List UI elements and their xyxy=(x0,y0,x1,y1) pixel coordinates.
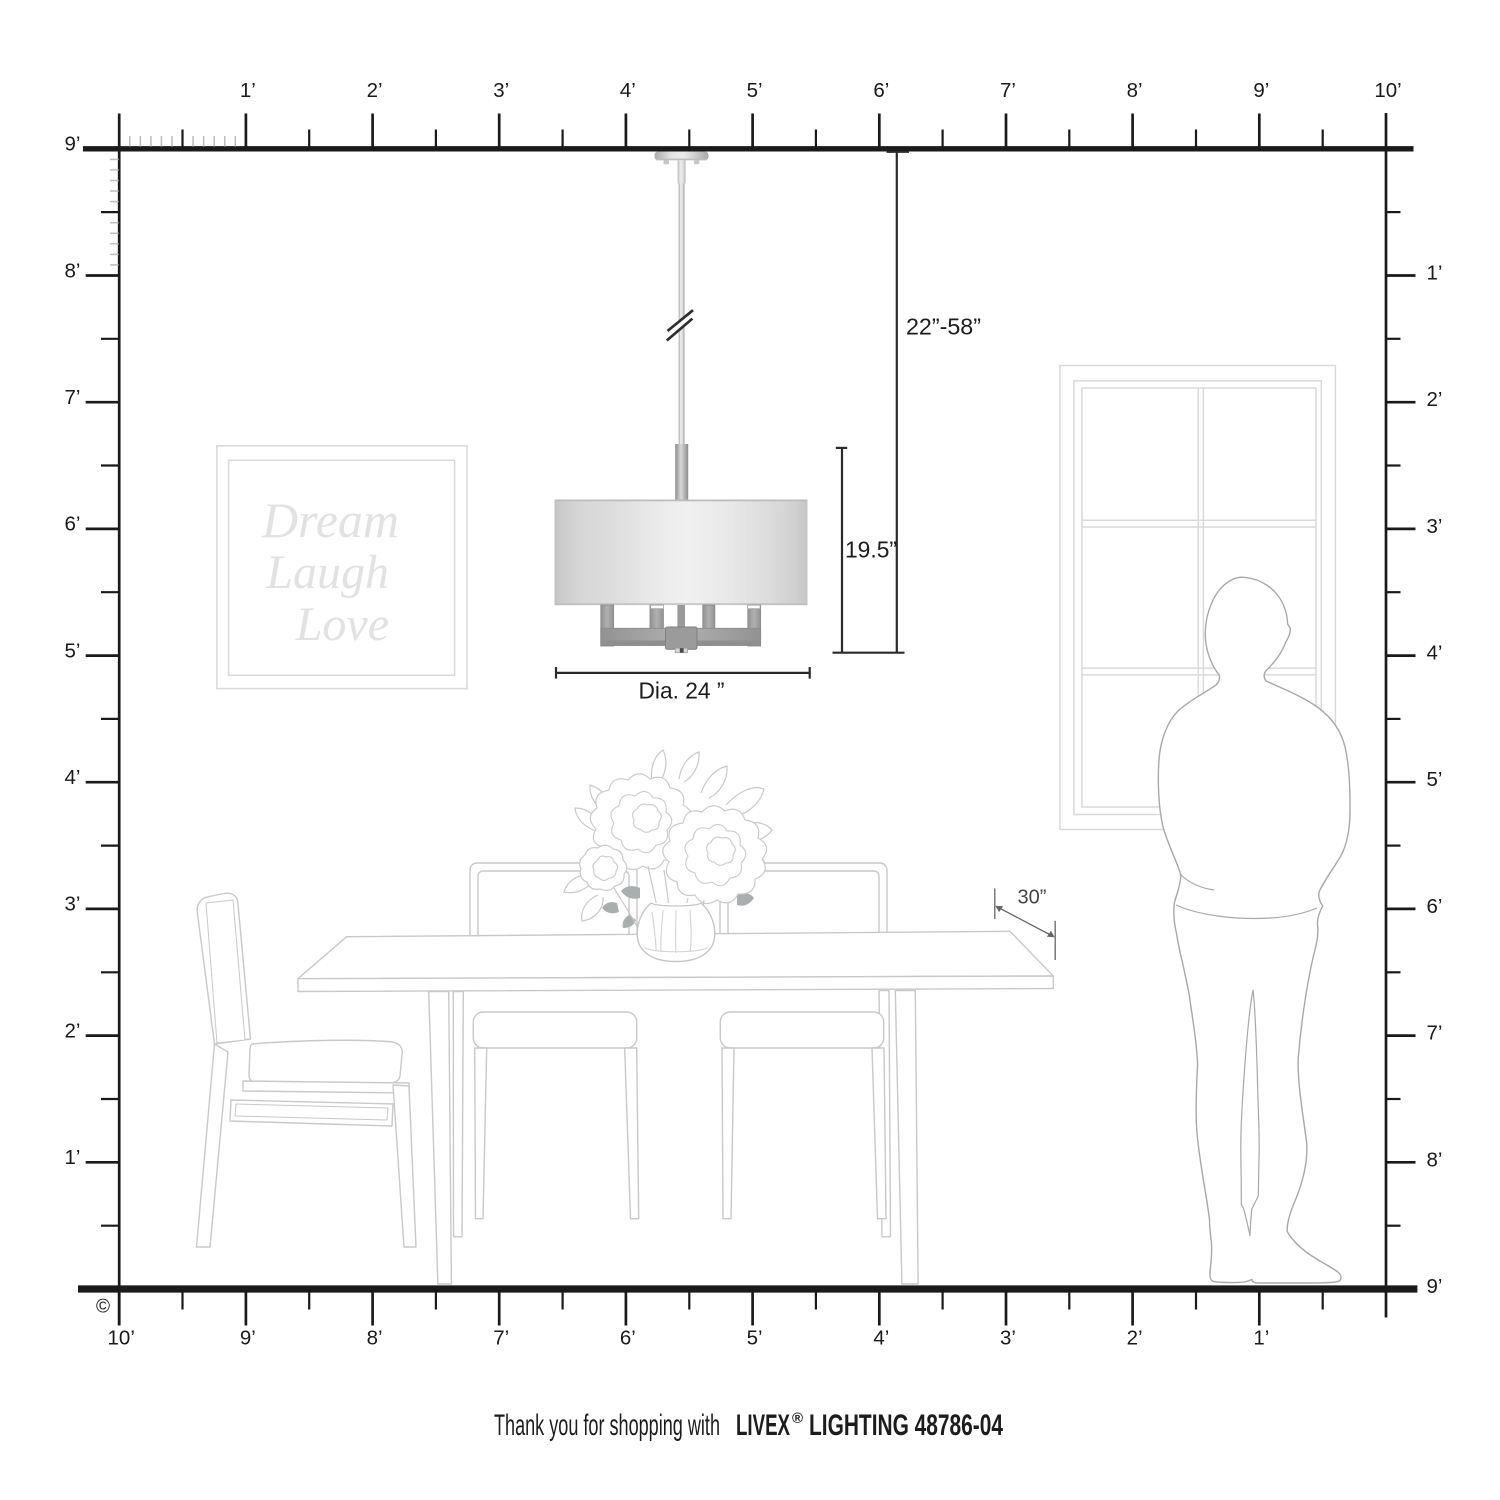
svg-text:9’: 9’ xyxy=(240,1327,256,1350)
svg-text:9’: 9’ xyxy=(1427,1275,1443,1298)
svg-text:3’: 3’ xyxy=(493,79,509,102)
svg-text:1’: 1’ xyxy=(240,79,256,102)
svg-text:6’: 6’ xyxy=(65,513,81,536)
svg-text:LIGHTING 48786-04: LIGHTING 48786-04 xyxy=(809,1409,1003,1442)
svg-text:4’: 4’ xyxy=(1427,642,1443,665)
svg-text:3’: 3’ xyxy=(1427,515,1443,538)
svg-text:5’: 5’ xyxy=(747,1327,763,1350)
svg-text:3’: 3’ xyxy=(65,893,81,916)
svg-text:7’: 7’ xyxy=(493,1327,509,1350)
svg-text:19.5”: 19.5” xyxy=(845,537,897,563)
svg-text:9’: 9’ xyxy=(65,133,81,156)
svg-text:6’: 6’ xyxy=(1427,895,1443,918)
svg-text:Dream: Dream xyxy=(261,492,399,548)
svg-text:1’: 1’ xyxy=(1427,262,1443,285)
svg-text:6’: 6’ xyxy=(873,79,889,102)
svg-text:8’: 8’ xyxy=(1127,79,1143,102)
svg-text:Dia. 24 ”: Dia. 24 ” xyxy=(639,678,725,704)
svg-text:4’: 4’ xyxy=(620,79,636,102)
svg-text:8’: 8’ xyxy=(65,259,81,282)
svg-text:LIVEX: LIVEX xyxy=(736,1409,790,1442)
svg-text:®: ® xyxy=(792,1410,803,1427)
svg-text:30”: 30” xyxy=(1018,887,1047,909)
svg-text:1’: 1’ xyxy=(1253,1327,1269,1350)
svg-text:8’: 8’ xyxy=(1427,1148,1443,1171)
svg-text:8’: 8’ xyxy=(367,1327,383,1350)
svg-text:7’: 7’ xyxy=(1427,1022,1443,1045)
svg-text:2’: 2’ xyxy=(65,1019,81,1042)
svg-text:10’: 10’ xyxy=(1374,79,1401,102)
svg-text:©: © xyxy=(96,1297,110,1318)
svg-text:7’: 7’ xyxy=(65,386,81,409)
svg-text:5’: 5’ xyxy=(1427,768,1443,791)
svg-text:4’: 4’ xyxy=(65,766,81,789)
svg-text:5’: 5’ xyxy=(65,639,81,662)
svg-text:5’: 5’ xyxy=(747,79,763,102)
svg-text:Thank you for shopping with: Thank you for shopping with xyxy=(494,1409,720,1442)
svg-text:6’: 6’ xyxy=(620,1327,636,1350)
svg-text:3’: 3’ xyxy=(1000,1327,1016,1350)
svg-text:7’: 7’ xyxy=(1000,79,1016,102)
svg-text:2’: 2’ xyxy=(1127,1327,1143,1350)
svg-text:22”-58”: 22”-58” xyxy=(906,313,981,339)
svg-text:9’: 9’ xyxy=(1253,79,1269,102)
svg-text:2’: 2’ xyxy=(1427,388,1443,411)
svg-text:Love: Love xyxy=(295,598,389,651)
svg-text:Laugh: Laugh xyxy=(265,546,389,599)
svg-text:10’: 10’ xyxy=(108,1327,135,1350)
svg-text:4’: 4’ xyxy=(873,1327,889,1350)
svg-text:2’: 2’ xyxy=(367,79,383,102)
svg-text:1’: 1’ xyxy=(65,1146,81,1169)
